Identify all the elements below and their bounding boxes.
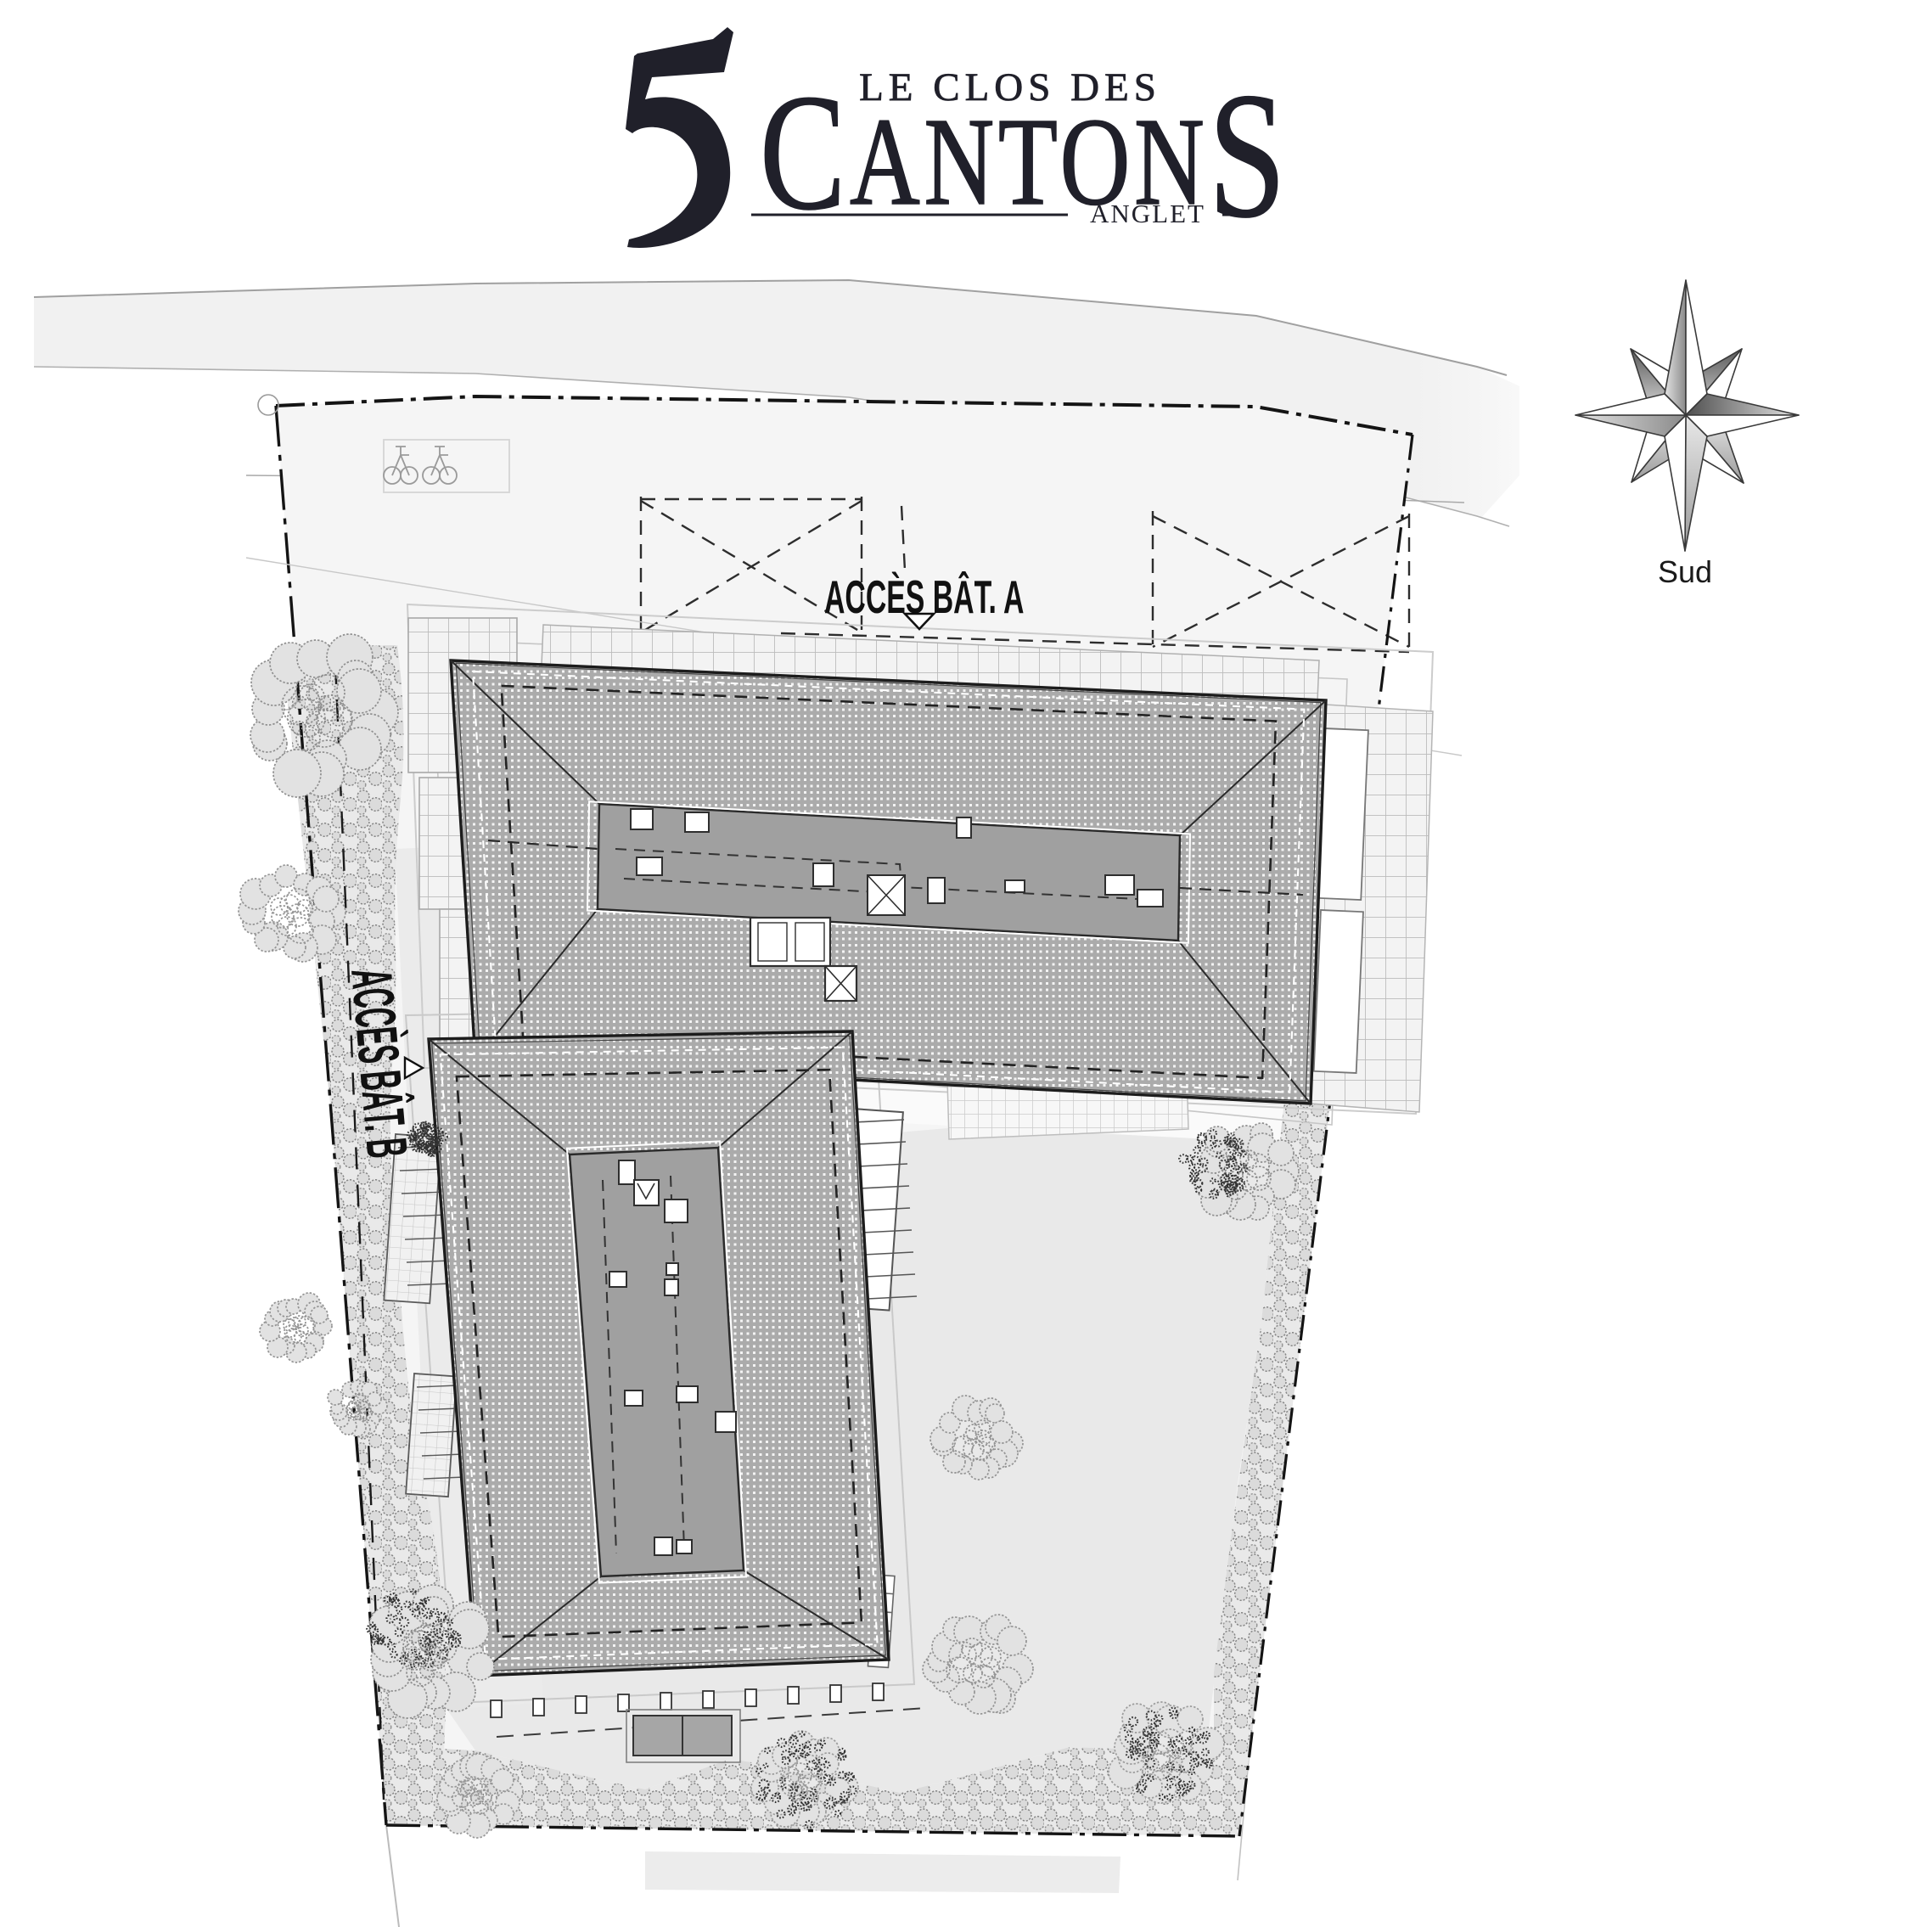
svg-text:Sud: Sud xyxy=(1658,554,1712,589)
svg-text:ANGLET: ANGLET xyxy=(1090,199,1205,228)
